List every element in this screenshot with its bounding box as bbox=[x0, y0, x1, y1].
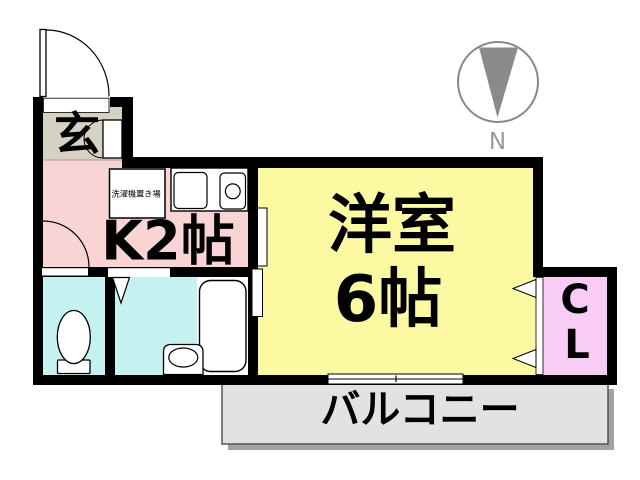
toilet-door-opening bbox=[42, 268, 88, 275]
closet-label-line1: C bbox=[560, 277, 589, 323]
wall-closet-right bbox=[607, 267, 617, 385]
floor-plan-page: N バルコニー bbox=[0, 0, 640, 480]
kitchen-sink bbox=[174, 173, 207, 209]
balcony-label: バルコニー bbox=[320, 387, 519, 433]
entrance-door-leaf bbox=[40, 30, 46, 97]
wall-room-right bbox=[533, 157, 543, 277]
kitchen-label: K2帖 bbox=[101, 210, 234, 273]
compass-north-label: N bbox=[489, 129, 506, 155]
western-room-label-line1: 洋室 bbox=[328, 189, 456, 263]
floor-plan-svg: N バルコニー bbox=[0, 0, 640, 480]
bathtub-fixture bbox=[200, 281, 247, 372]
wall-bottom-long bbox=[33, 375, 617, 385]
washing-machine-label: 洗濯機置き場 bbox=[112, 189, 161, 199]
western-room-label-line2: 6帖 bbox=[334, 263, 443, 337]
wall-closet-top bbox=[533, 267, 617, 277]
genkan-label: 玄 bbox=[54, 107, 100, 161]
wall-toilet-bath bbox=[105, 277, 115, 375]
balcony: バルコニー bbox=[222, 383, 614, 450]
kitchen-counter bbox=[171, 168, 248, 211]
closet-label-line2: L bbox=[564, 322, 590, 368]
wall-top-long bbox=[122, 157, 543, 168]
balcony-window bbox=[328, 374, 463, 384]
washbasin-fixture bbox=[164, 345, 204, 375]
stove-burner bbox=[225, 184, 240, 199]
toilet-fixture bbox=[57, 311, 90, 374]
wall-left-outer bbox=[33, 97, 43, 385]
